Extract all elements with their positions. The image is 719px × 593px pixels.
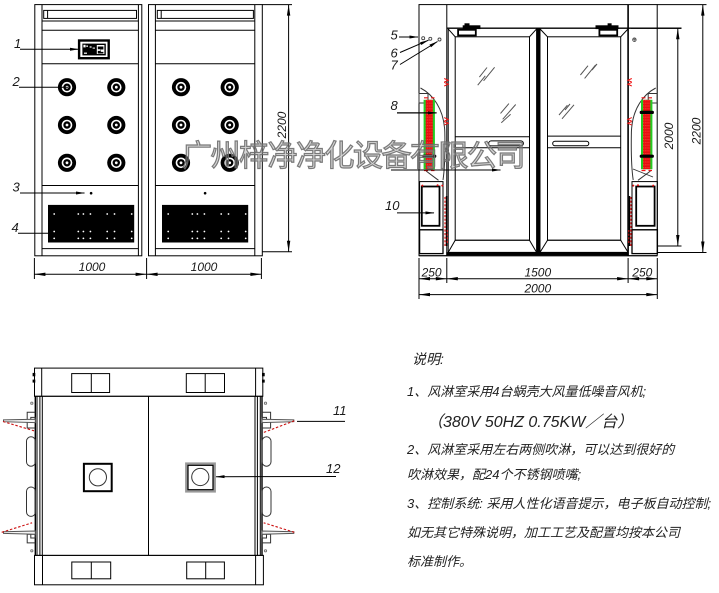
svg-text:1、风淋室采用4台蜗壳大风量低噪音风机;: 1、风淋室采用4台蜗壳大风量低噪音风机; — [407, 384, 646, 399]
svg-text:3、控制系统: 采用人性化语音提示，电子板自动控制;: 3、控制系统: 采用人性化语音提示，电子板自动控制; — [407, 496, 711, 511]
svg-text:2000: 2000 — [523, 281, 551, 295]
svg-text:标准制作。: 标准制作。 — [407, 554, 472, 569]
svg-text:（380V 50HZ 0.75KW／台）: （380V 50HZ 0.75KW／台） — [427, 413, 633, 431]
svg-text:1000: 1000 — [191, 260, 218, 274]
svg-text:8: 8 — [391, 98, 399, 113]
svg-text:1: 1 — [14, 36, 21, 51]
svg-text:7: 7 — [391, 58, 399, 73]
svg-text:2200: 2200 — [689, 117, 703, 145]
svg-text:2、风淋室采用左右两侧吹淋，可以达到很好的: 2、风淋室采用左右两侧吹淋，可以达到很好的 — [406, 442, 676, 457]
svg-text:250: 250 — [421, 266, 442, 280]
svg-text:如无其它特殊说明，加工工艺及配置均按本公司: 如无其它特殊说明，加工工艺及配置均按本公司 — [407, 525, 682, 540]
svg-text:2000: 2000 — [662, 122, 676, 150]
svg-text:250: 250 — [631, 266, 652, 280]
svg-text:4: 4 — [12, 220, 19, 235]
svg-text:1500: 1500 — [524, 266, 551, 280]
svg-text:吹淋效果，配24个不锈钢喷嘴;: 吹淋效果，配24个不锈钢喷嘴; — [407, 467, 581, 482]
svg-text:10: 10 — [385, 198, 400, 213]
svg-text:1000: 1000 — [79, 260, 106, 274]
svg-text:说明:: 说明: — [412, 351, 444, 367]
svg-text:5: 5 — [391, 28, 399, 43]
svg-text:11: 11 — [333, 403, 347, 418]
svg-text:2200: 2200 — [275, 111, 289, 139]
svg-text:2: 2 — [12, 74, 21, 89]
svg-text:广州梓净净化设备有限公司: 广州梓净净化设备有限公司 — [182, 140, 524, 173]
svg-text:12: 12 — [326, 461, 341, 476]
svg-text:3: 3 — [13, 180, 21, 195]
